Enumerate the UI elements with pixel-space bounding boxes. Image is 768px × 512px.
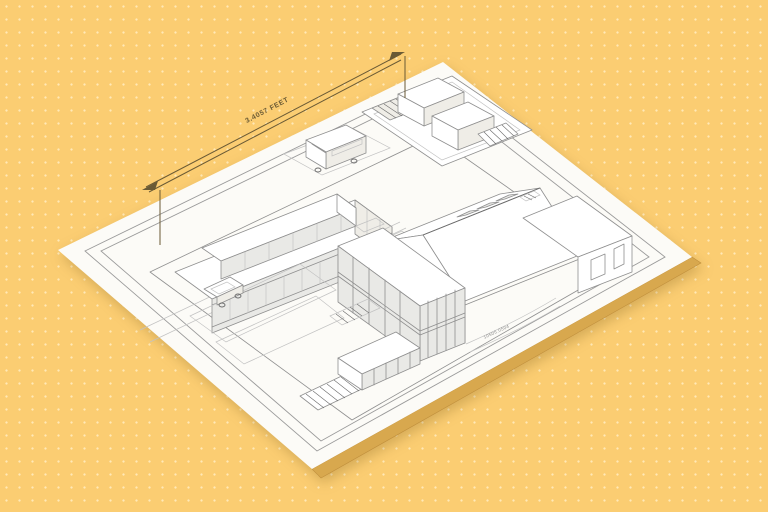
dimension-label: 3.4057 FEET (244, 96, 290, 124)
arrowhead-right-icon (389, 52, 405, 61)
illustration-scene: 3.4057 FEET 10505.0504 (0, 0, 768, 512)
blueprint-illustration: 3.4057 FEET 10505.0504 (0, 0, 768, 512)
